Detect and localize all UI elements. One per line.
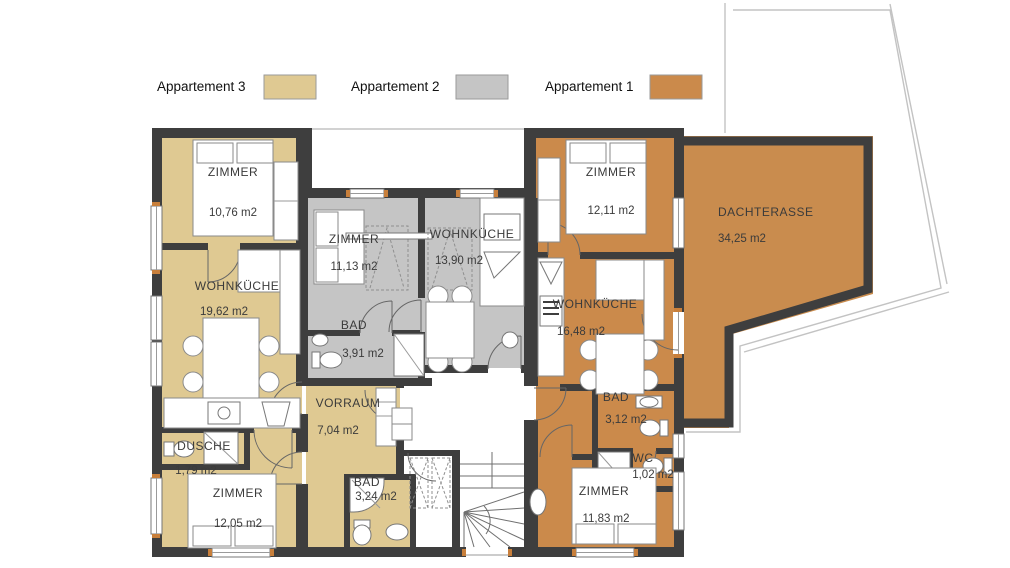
label-a1-dachterasse-area: 34,25 m2 xyxy=(718,233,766,245)
toilet-a2-bad xyxy=(312,352,342,368)
label-a3-zimmer-sw-name: ZIMMER xyxy=(213,486,263,500)
wardrobe-a3-nw xyxy=(274,162,298,240)
label-a3-vorraum-area: 7,04 m2 xyxy=(317,425,359,437)
label-a2-bad-name: BAD xyxy=(341,318,367,332)
bed-a1-n xyxy=(566,140,646,234)
floorplan-page: Appartement 3 Appartement 2 Appartement … xyxy=(0,0,1010,568)
label-a3-wohnkueche-name: WOHNKÜCHE xyxy=(195,279,280,293)
terrace-door-opening xyxy=(673,312,684,354)
entrance-opening xyxy=(466,547,508,557)
legend-swatch-appartement-1 xyxy=(650,75,702,99)
label-a1-dachterasse-name: DACHTERASSE xyxy=(718,205,814,219)
floorplan-svg: Appartement 3 Appartement 2 Appartement … xyxy=(0,0,1010,568)
label-a3-zimmer-nw-name: ZIMMER xyxy=(208,165,258,179)
toilet-a3-bad xyxy=(353,520,371,545)
wardrobe-a1-n xyxy=(538,158,560,242)
kitchen-counter-a3 xyxy=(164,398,300,428)
label-a3-vorraum-name: VORRAUM xyxy=(316,396,381,410)
label-a1-zimmer-s-area: 11,83 m2 xyxy=(582,513,629,525)
label-a1-zimmer-n-area: 12,11 m2 xyxy=(587,205,634,217)
label-a2-bad-area: 3,91 m2 xyxy=(342,348,384,360)
legend-label-appartement-2: Appartement 2 xyxy=(351,79,440,94)
label-a3-bad-area: 3,24 m2 xyxy=(355,491,397,503)
label-a1-wc-area: 1,02 m2 xyxy=(632,469,674,481)
legend-swatch-appartement-2 xyxy=(456,75,508,99)
legend-label-appartement-3: Appartement 3 xyxy=(157,79,246,94)
shower-a2-bad xyxy=(394,334,424,376)
label-a1-zimmer-s-name: ZIMMER xyxy=(579,484,629,498)
label-a1-wc-name: WC xyxy=(633,451,654,465)
kitchen-counter-a1 xyxy=(538,258,564,376)
label-a3-wohnkueche-area: 19,62 m2 xyxy=(200,306,248,318)
label-a3-zimmer-nw-area: 10,76 m2 xyxy=(209,207,257,219)
sink-a2-bad xyxy=(312,334,328,346)
label-a1-zimmer-n-name: ZIMMER xyxy=(586,165,636,179)
bed-a3-nw xyxy=(193,140,273,236)
sink-a3-bad xyxy=(386,524,408,540)
room-a3-corridor xyxy=(244,428,302,473)
label-a1-wohnkueche-area: 16,48 m2 xyxy=(557,326,605,338)
legend-swatch-appartement-3 xyxy=(264,75,316,99)
sink-a1-corridor xyxy=(530,489,546,515)
label-a3-dusche-name: DUSCHE xyxy=(177,439,231,453)
room-a1-dachterasse xyxy=(679,136,873,428)
label-a1-bad-area: 3,12 m2 xyxy=(605,414,647,426)
label-a2-zimmer-name: ZIMMER xyxy=(329,232,379,246)
staircase xyxy=(460,452,524,547)
roof-edge-ne xyxy=(890,4,947,284)
sink-a1-bad xyxy=(636,396,662,408)
hall-closet xyxy=(392,408,412,440)
label-a1-bad-name: BAD xyxy=(603,390,629,404)
label-a2-wohnkueche-area: 13,90 m2 xyxy=(435,255,483,267)
label-a2-wohnkueche-name: WOHNKÜCHE xyxy=(430,227,515,241)
label-a1-wohnkueche-name: WOHNKÜCHE xyxy=(553,297,638,311)
label-a3-dusche-area: 1,79 m2 xyxy=(175,465,217,477)
label-a3-bad-name: BAD xyxy=(354,475,380,489)
legend-label-appartement-1: Appartement 1 xyxy=(545,79,634,94)
legend: Appartement 3 Appartement 2 Appartement … xyxy=(157,75,702,99)
label-a2-zimmer-area: 11,13 m2 xyxy=(330,261,377,273)
label-a3-zimmer-sw-area: 12,05 m2 xyxy=(214,518,262,530)
